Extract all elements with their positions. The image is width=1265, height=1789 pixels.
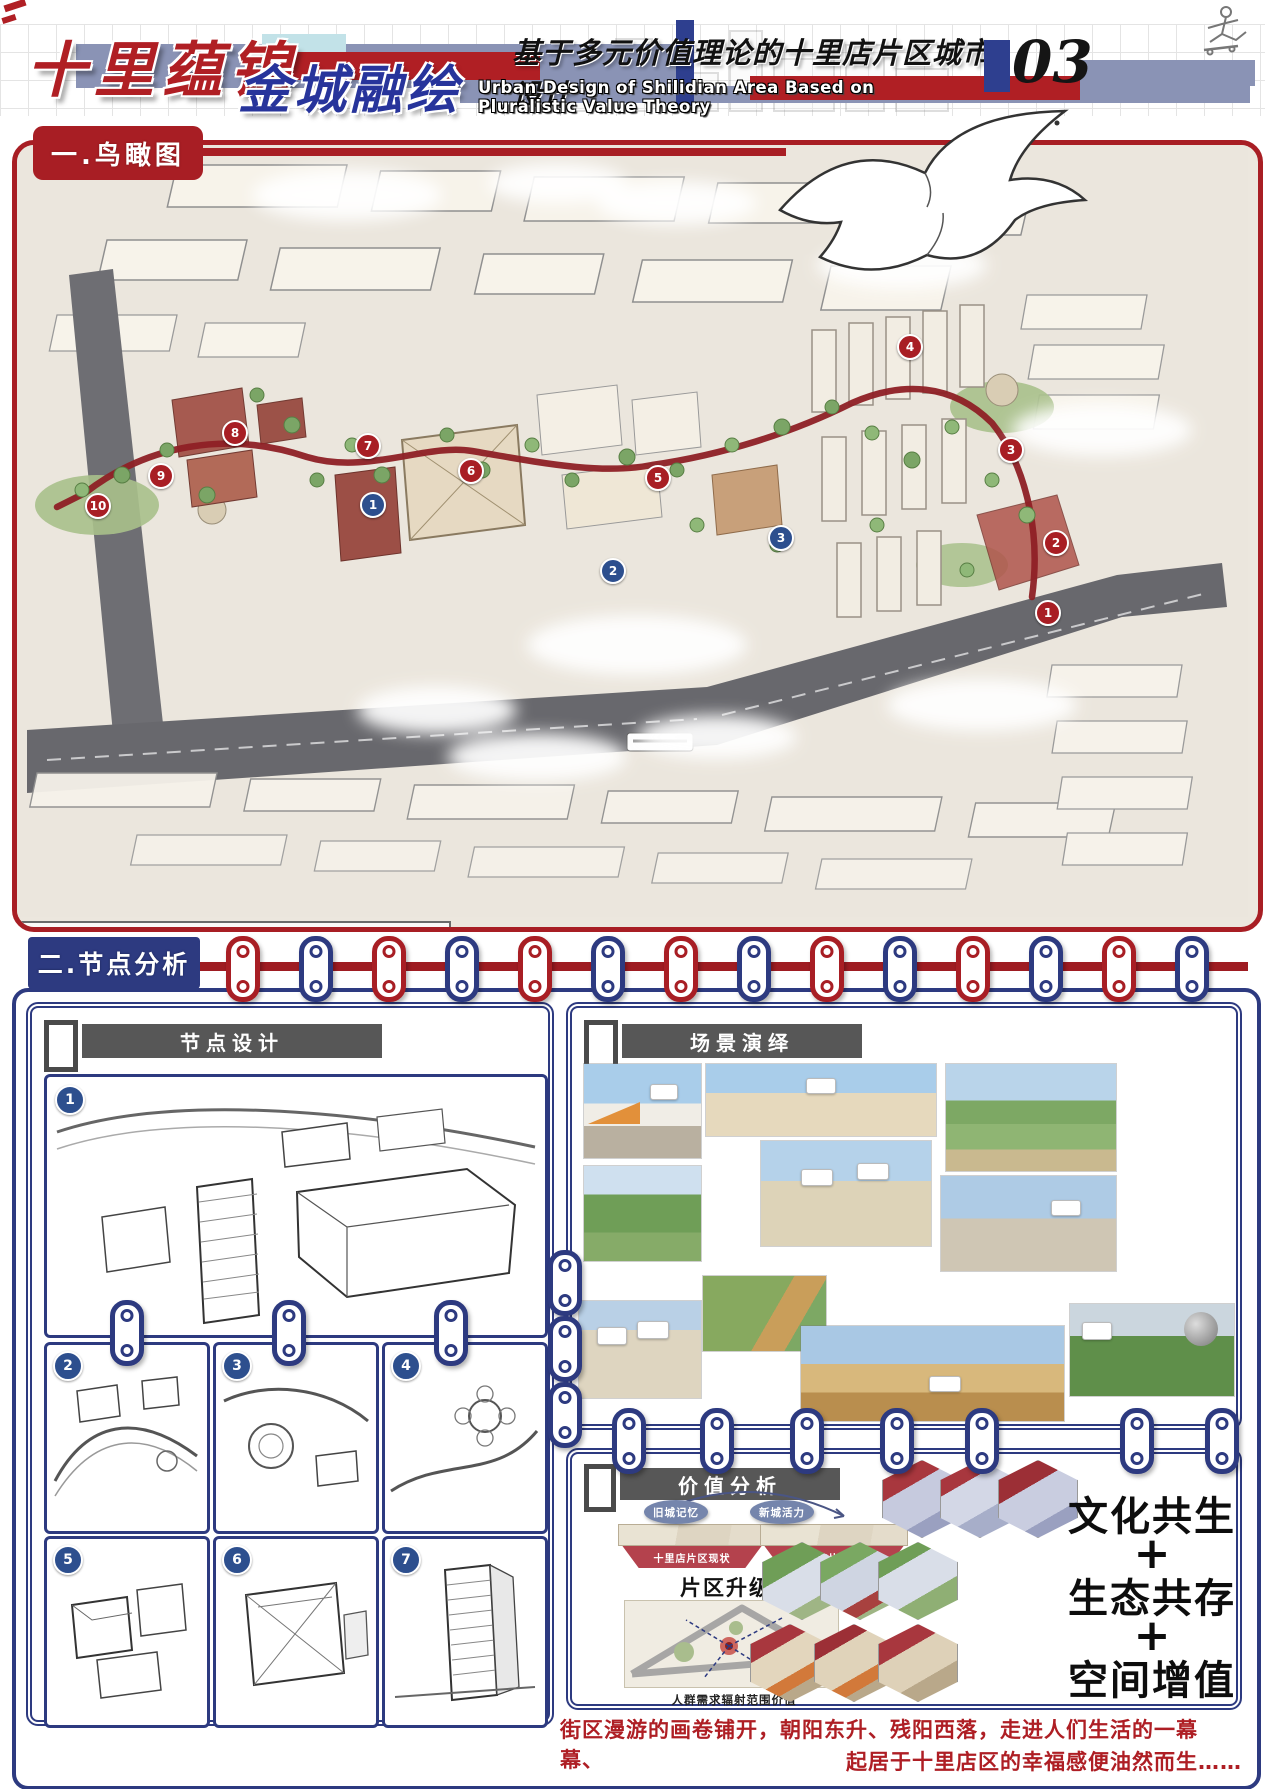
page-number: 03 (1012, 28, 1082, 96)
map-legend: 1院聚服园 2市集新园 3文延展园 1津渡广场（渡口文化） 2陶艺广场（彩陶文化… (17, 921, 451, 932)
binder-ring (1175, 936, 1209, 1002)
scene-title: 场景演绎 (622, 1024, 862, 1058)
node-box-2: 2 (44, 1342, 210, 1534)
map-marker-red-1: 1 (1035, 600, 1061, 626)
speech-bubble (929, 1376, 961, 1392)
map-marker-red-2: 2 (1043, 530, 1069, 556)
binder-ring (299, 936, 333, 1002)
binder-ring (1205, 1408, 1239, 1474)
poster-root: 十里蕴锦 金城融绘 基于多元价值理论的十里店片区城市设计 Urban Desig… (0, 0, 1265, 1789)
map-marker-blue-1: 1 (360, 492, 386, 518)
panel-header-icon (44, 1020, 78, 1072)
scene-image-boardwalk (801, 1326, 1064, 1421)
legend-circle: 6 (293, 932, 314, 933)
node-marker-2: 2 (53, 1351, 83, 1381)
binder-ring (548, 1250, 582, 1316)
speech-bubble (857, 1163, 889, 1180)
node-box-7: 7 (382, 1536, 548, 1728)
speech-bubble (637, 1321, 669, 1339)
binder-ring (1102, 936, 1136, 1002)
map-marker-red-6: 6 (458, 458, 484, 484)
binder-ring (737, 936, 771, 1002)
speech-bubble (1051, 1200, 1081, 1216)
skater-sketch-icon (1192, 2, 1260, 64)
map-marker-blue-2: 2 (600, 558, 626, 584)
scene-panel: 场景演绎 (566, 1002, 1242, 1430)
binder-ring (445, 936, 479, 1002)
node-box-6: 6 (213, 1536, 379, 1728)
binder-ring (434, 1300, 468, 1366)
node-marker-5: 5 (53, 1545, 83, 1575)
speech-bubble (806, 1078, 836, 1094)
binder-ring (664, 936, 698, 1002)
seagull-illustration (775, 105, 1090, 310)
hex-vignette-space (878, 1624, 958, 1702)
map-marker-red-10: 10 (85, 493, 111, 519)
scene-image-lawn (584, 1166, 701, 1261)
status-map-label: 十里店片区现状 (618, 1546, 766, 1568)
binder-ring (612, 1408, 646, 1474)
section1-title: 一.鸟瞰图 (33, 126, 203, 180)
map-marker-blue-3: 3 (768, 525, 794, 551)
legend-item: 6民俗文馆（民族文化） (293, 931, 443, 932)
scene-image-park-path (946, 1064, 1116, 1171)
map-texture (618, 1524, 766, 1546)
closing-text-line2: 起居于十里店区的幸福感便油然而生…… (690, 1746, 1242, 1776)
scene-image-museum (584, 1064, 701, 1158)
legend-circle: 1 (130, 932, 151, 933)
binder-ring (1029, 936, 1063, 1002)
binder-ring (548, 1316, 582, 1382)
binder-ring (372, 936, 406, 1002)
section1-title-rule (200, 148, 786, 156)
node-design-title: 节点设计 (82, 1024, 382, 1058)
binder-ring (965, 1408, 999, 1474)
binder-ring (518, 936, 552, 1002)
map-texture (760, 1524, 908, 1546)
bubble-old-city: 旧城记忆 (644, 1500, 708, 1524)
section2-title: 二.节点分析 (28, 937, 200, 989)
legend-item: 1津渡广场（渡口文化） (130, 931, 293, 932)
panel-header-icon (584, 1464, 616, 1512)
map-marker-red-7: 7 (355, 433, 381, 459)
speech-bubble (650, 1084, 678, 1100)
node-marker-4: 4 (391, 1351, 421, 1381)
map-marker-red-3: 3 (998, 437, 1024, 463)
binder-ring (880, 1408, 914, 1474)
binder-ring (110, 1300, 144, 1366)
value-panel: 价值分析 旧城记忆 新城活力 十里店片区现状 十里店片区改造 片区升级改造价值 … (566, 1448, 1242, 1710)
binder-ring (790, 1408, 824, 1474)
binder-ring (700, 1408, 734, 1474)
node-lineart-1 (47, 1077, 545, 1335)
map-marker-red-4: 4 (897, 334, 923, 360)
slogan-space: 空间增值 (1062, 1648, 1242, 1706)
node-marker-7: 7 (391, 1545, 421, 1575)
node-box-3: 3 (213, 1342, 379, 1534)
node-box-5: 5 (44, 1536, 210, 1728)
speech-bubble (801, 1169, 833, 1186)
scene-image-plaza-pano (706, 1064, 936, 1136)
canopy-shape (588, 1102, 640, 1124)
binder-ring (226, 936, 260, 1002)
status-map-block: 十里店片区现状 (618, 1524, 766, 1568)
binder-ring (591, 936, 625, 1002)
corner-mark (1, 14, 16, 24)
speech-bubble (597, 1327, 627, 1345)
scene-image-street (941, 1176, 1116, 1271)
binder-ring (810, 936, 844, 1002)
map-marker-red-5: 5 (645, 465, 671, 491)
binder-ring (272, 1300, 306, 1366)
binder-ring (956, 936, 990, 1002)
scene-image-hex-plaza (579, 1301, 701, 1398)
node-marker-3: 3 (222, 1351, 252, 1381)
scene-image-plaza-seating (761, 1141, 931, 1246)
map-marker-red-9: 9 (148, 463, 174, 489)
page-number-square (984, 40, 1010, 92)
node-box-4: 4 (382, 1342, 548, 1534)
bubble-new-city: 新城活力 (750, 1500, 814, 1524)
map-marker-red-8: 8 (222, 420, 248, 446)
corner-mark (3, 0, 26, 12)
speech-bubble (1082, 1322, 1112, 1340)
binder-ring (548, 1382, 582, 1448)
node-marker-6: 6 (222, 1545, 252, 1575)
node-box-1: 1 (44, 1074, 548, 1338)
node-marker-1: 1 (55, 1085, 85, 1115)
binder-ring (1120, 1408, 1154, 1474)
binder-ring (883, 936, 917, 1002)
sculpture-shape (1184, 1312, 1218, 1346)
scene-image-sculpture-garden (1070, 1304, 1234, 1396)
chain-rail-red (36, 962, 1248, 971)
